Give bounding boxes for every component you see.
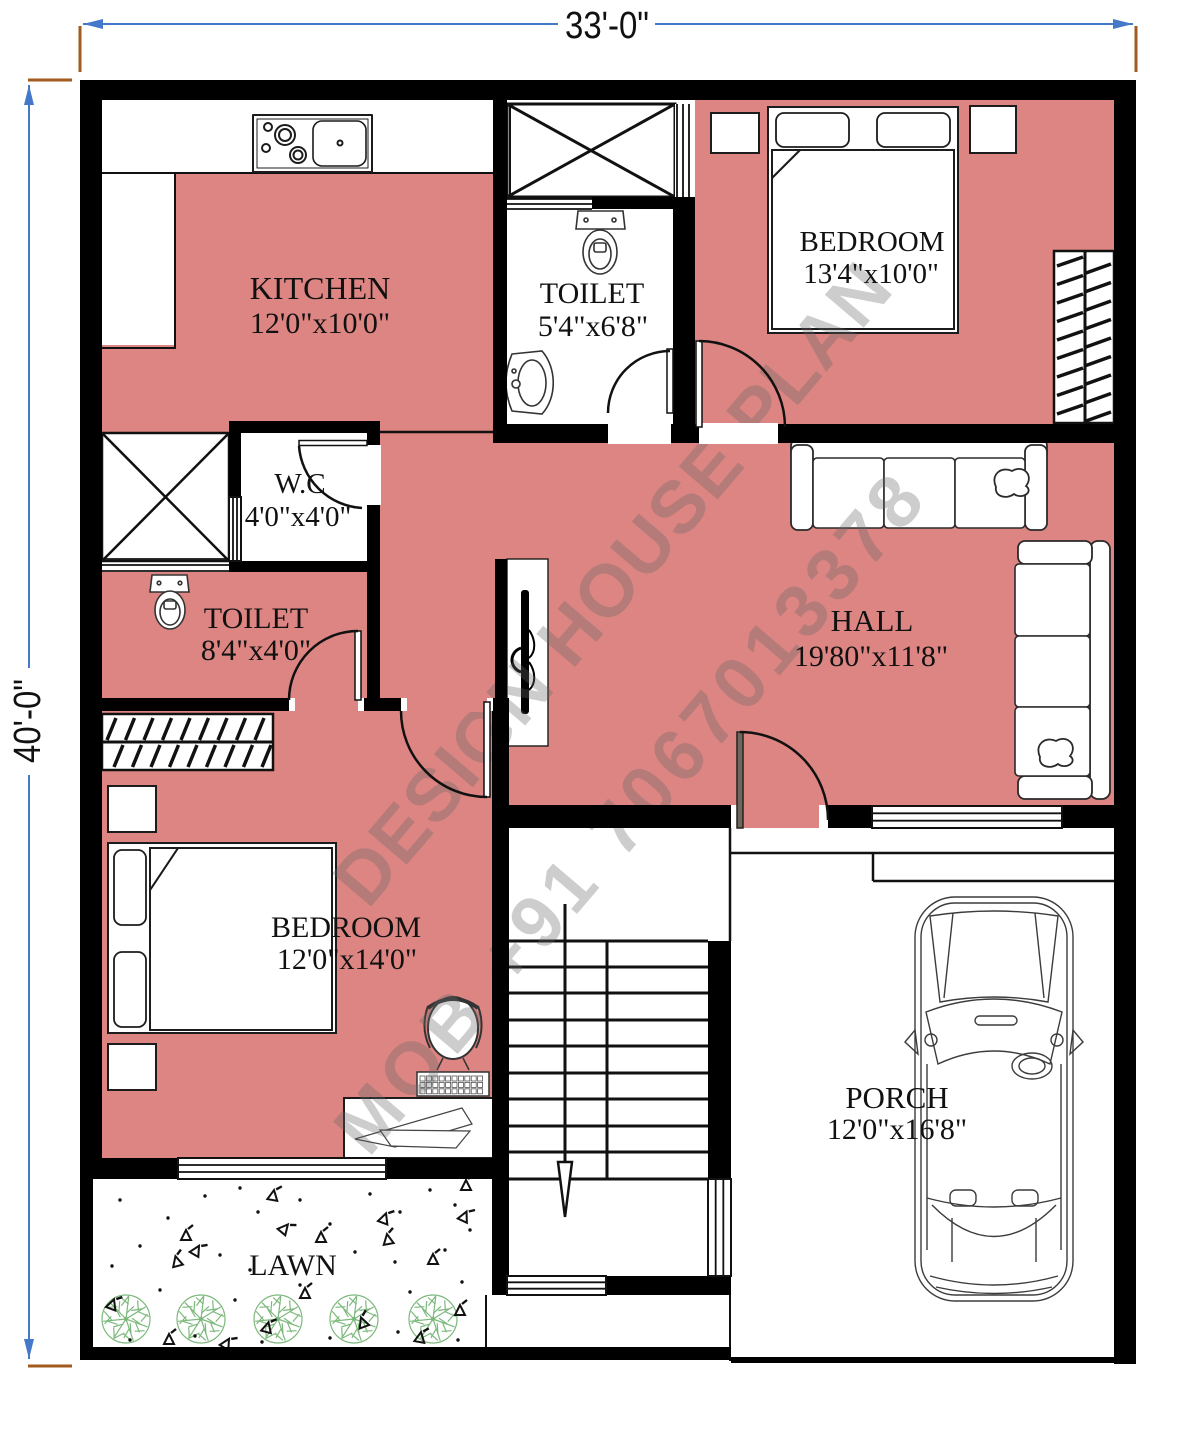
svg-text:BEDROOM: BEDROOM xyxy=(271,911,421,944)
svg-text:40'-0": 40'-0" xyxy=(7,679,49,763)
svg-text:TOILET: TOILET xyxy=(540,277,644,310)
svg-text:4'0"x4'0": 4'0"x4'0" xyxy=(245,501,352,533)
svg-text:TOILET: TOILET xyxy=(204,602,308,635)
svg-text:BEDROOM: BEDROOM xyxy=(799,226,944,258)
svg-text:W.C: W.C xyxy=(274,468,325,500)
svg-text:19'80"x11'8": 19'80"x11'8" xyxy=(794,640,948,673)
svg-text:5'4"x6'8": 5'4"x6'8" xyxy=(538,310,648,343)
svg-text:PORCH: PORCH xyxy=(845,1080,948,1115)
svg-text:LAWN: LAWN xyxy=(249,1249,337,1282)
svg-text:13'4"x10'0": 13'4"x10'0" xyxy=(803,258,939,290)
svg-text:12'0"x14'0": 12'0"x14'0" xyxy=(277,943,417,976)
svg-text:12'0"x16'8": 12'0"x16'8" xyxy=(827,1113,967,1146)
svg-text:KITCHEN: KITCHEN xyxy=(250,270,390,306)
svg-text:33'-0": 33'-0" xyxy=(565,5,649,47)
svg-text:HALL: HALL xyxy=(831,603,914,638)
svg-text:12'0"x10'0": 12'0"x10'0" xyxy=(250,307,390,340)
svg-text:8'4"x4'0": 8'4"x4'0" xyxy=(201,634,311,667)
